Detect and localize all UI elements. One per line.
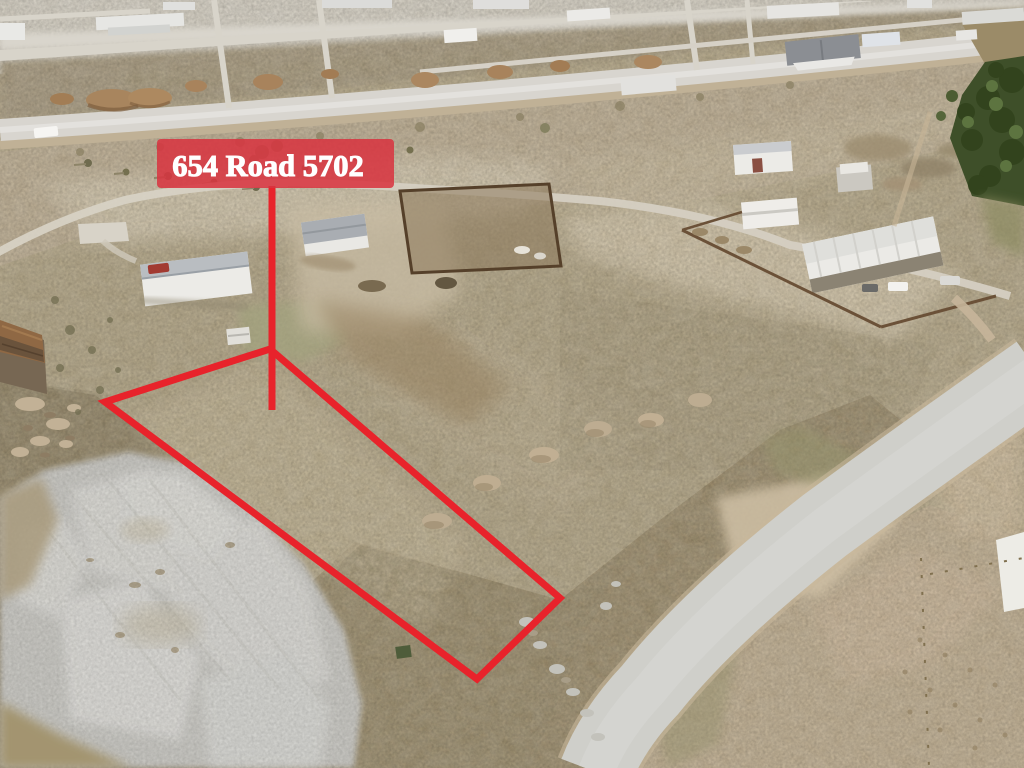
svg-text:654 Road 5702: 654 Road 5702: [172, 149, 364, 183]
